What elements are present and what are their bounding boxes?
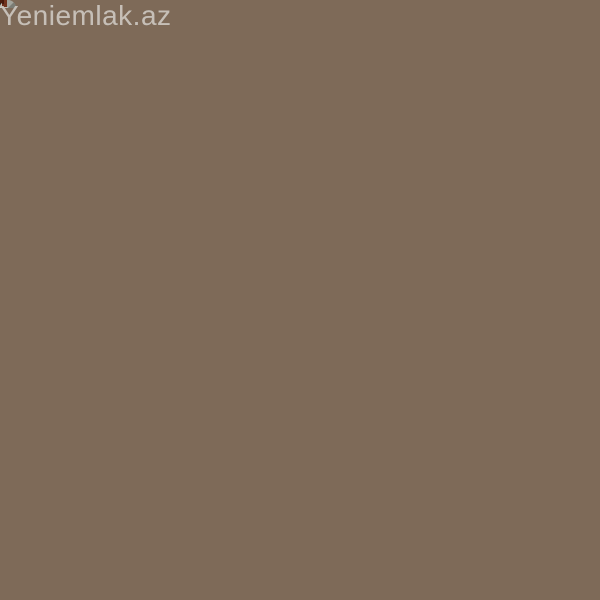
kitchen-photo: Indesit Yeniemlak.az Yeniemlak.az Yeniem…: [0, 0, 600, 600]
watermark: Yeniemlak.az: [0, 0, 172, 32]
